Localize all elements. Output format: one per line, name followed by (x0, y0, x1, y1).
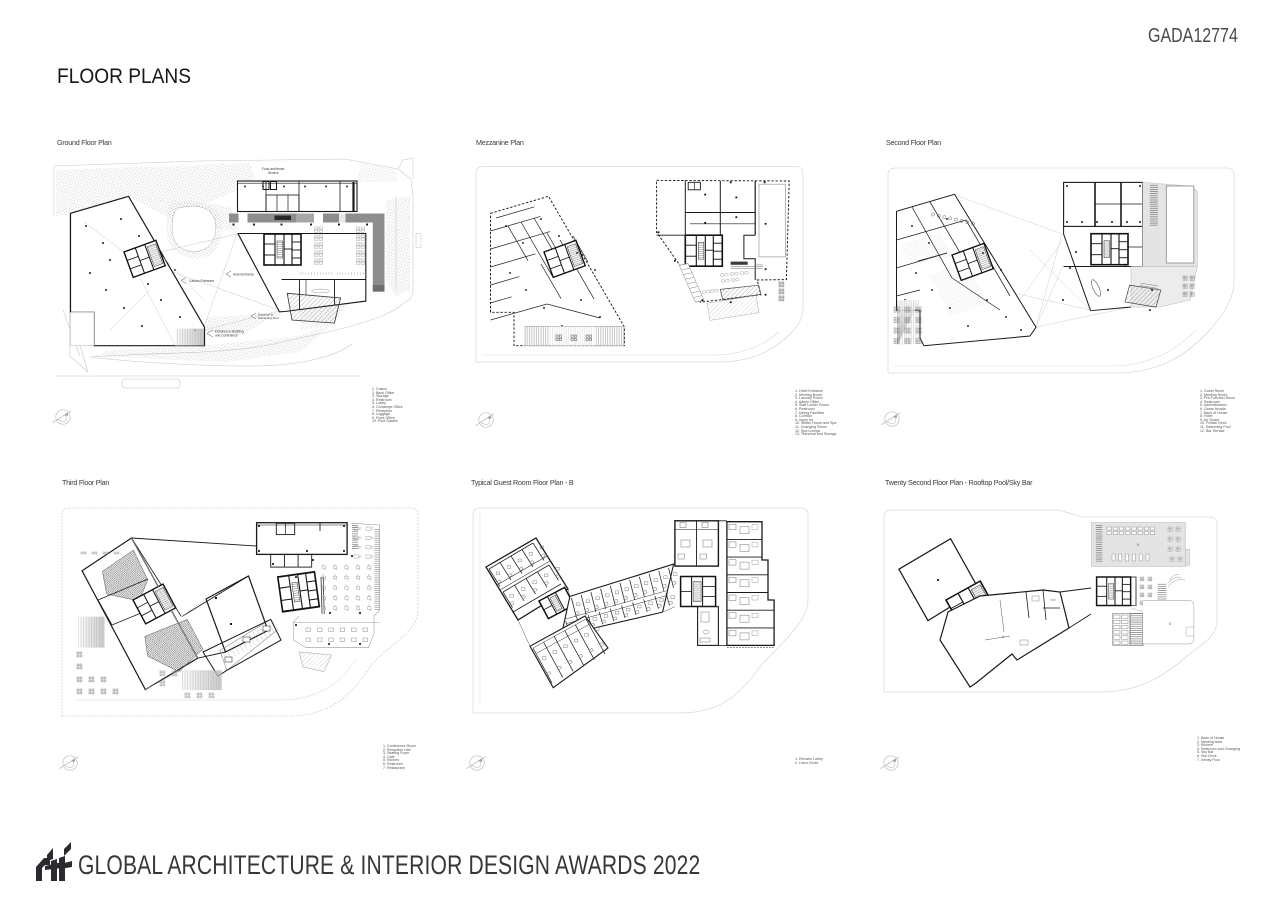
svg-text:5: 5 (1169, 622, 1171, 626)
svg-text:6: 6 (1002, 635, 1004, 639)
svg-text:Swimming Pool: Swimming Pool (258, 316, 279, 320)
svg-text:Service: Service (268, 171, 279, 175)
svg-text:Casino Entrance: Casino Entrance (189, 279, 214, 283)
svg-text:and Conference: and Conference (215, 334, 238, 338)
svg-text:8: 8 (1137, 543, 1139, 547)
svg-text:Hotel Entrance: Hotel Entrance (233, 273, 254, 277)
